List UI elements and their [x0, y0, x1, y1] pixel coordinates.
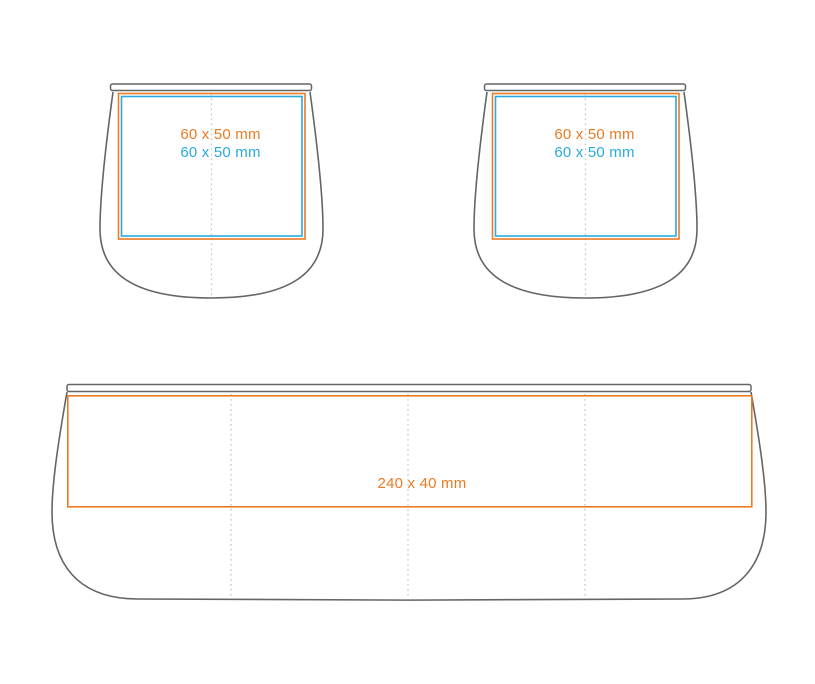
- print-area-orange: [68, 396, 752, 507]
- wrap-rim: [67, 385, 751, 392]
- print-area-orange: [119, 94, 306, 240]
- cup-back-drawing: [473, 83, 698, 300]
- print-area-orange: [493, 94, 680, 240]
- cup-rim: [111, 84, 312, 91]
- print-template-diagram: 60 x 50 mm 60 x 50 mm 60 x 50 mm 60 x 50…: [0, 0, 815, 684]
- wrap-body-outline: [52, 392, 766, 600]
- wrap-around-view: 240 x 40 mm: [40, 380, 770, 604]
- cup-back-view: 60 x 50 mm 60 x 50 mm: [473, 83, 698, 300]
- cup-front-drawing: [99, 83, 324, 300]
- wrap-drawing: [40, 380, 770, 604]
- cup-rim: [485, 84, 686, 91]
- cup-front-view: 60 x 50 mm 60 x 50 mm: [99, 83, 324, 300]
